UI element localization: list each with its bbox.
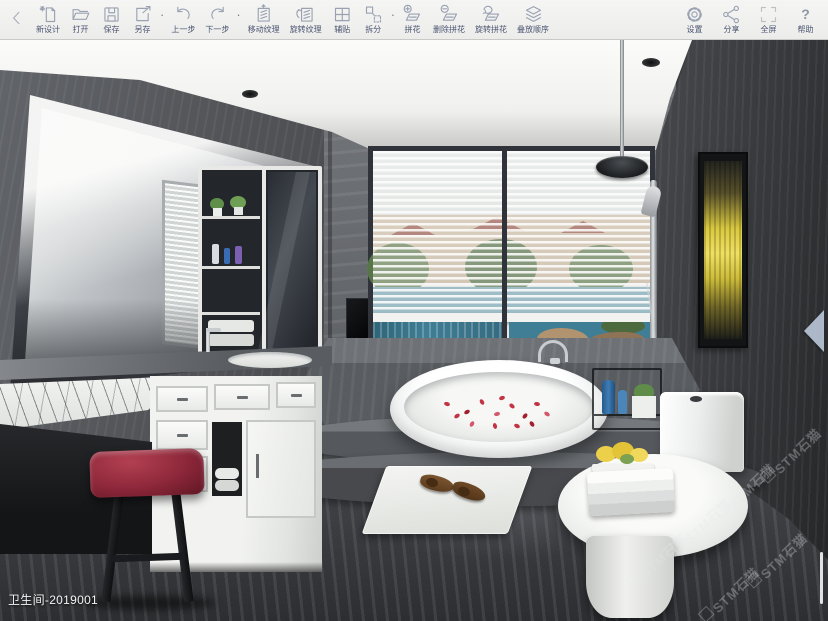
rose-petal [513,423,520,429]
rose-petal [463,409,470,415]
toiletry-bottle [212,244,219,264]
save-icon [101,3,122,25]
undo-icon [173,3,194,25]
toolbar-item-label: 全屏 [761,25,777,35]
cabinet-shelf [202,266,260,269]
fullscreen-icon [758,3,779,25]
rose-petal [494,411,501,416]
window-mullion [502,151,507,350]
metal-shelf-rack [592,368,662,430]
toolbar-item-split[interactable]: 拆分 [358,0,389,35]
toolbar-item-mosaic[interactable]: 拼花 [397,0,428,35]
toolbar-item-label: 下一步 [205,25,229,35]
toolbar-item-label: 拆分 [365,25,381,35]
open-icon [70,3,91,25]
back-button[interactable] [4,0,31,32]
toolbar-item-label: 新设计 [36,25,60,35]
gear-icon [684,3,705,25]
toolbar-item-settings[interactable]: 设置 [676,0,713,35]
design-canvas[interactable]: STM石猫 STM石猫 STM石猫 STM石猫 STM石猫 STM石猫 卫生间-… [0,40,828,621]
layers-icon [523,3,544,25]
toolbar-item-help[interactable]: ? 帮助 [787,0,824,35]
door-handle [256,454,259,478]
vanity-drawer [214,384,270,410]
toolbar-item-label: 旋转拼花 [475,25,507,35]
toolbar-item-label: 另存 [135,25,151,35]
rose-petal [498,395,505,401]
blue-bottle [602,380,615,414]
cabinet-shelf [202,216,260,219]
mosaic-add-icon [402,3,423,25]
panel-collapse-arrow[interactable] [804,310,824,352]
vanity-drawer [276,382,316,408]
cabinet-glass-door [268,172,316,360]
recessed-downlight [242,90,258,98]
toolbar-item-label: 上一步 [171,25,195,35]
toolbar-item-share[interactable]: 分享 [713,0,750,35]
toolbar-item-delete-mosaic[interactable]: 删除拼花 [428,0,470,35]
toolbar-item-label: 设置 [687,25,703,35]
rose-petal [508,403,515,410]
flower-greens [620,454,634,464]
project-name-label: 卫生间-2019001 [8,591,98,608]
cabinet-shelf [202,312,260,315]
rose-petal [469,420,475,427]
split-icon [363,3,384,25]
rain-shower-head [596,156,648,178]
help-icon: ? [795,3,816,25]
toolbar-item-label: 辅贴 [334,25,350,35]
wall-artwork [698,152,748,348]
towel-niche [212,422,242,496]
toolbar-item-label: 分享 [724,25,740,35]
mosaic-remove-icon [439,3,460,25]
vanity-drawer [156,386,208,412]
vanity-door [246,420,316,518]
toolbar-item-label: 帮助 [798,25,814,35]
toolbar-item-rotate-mosaic[interactable]: 旋转拼花 [470,0,512,35]
toiletry-bottle [235,246,242,264]
rose-petal [543,411,550,418]
folded-towel [587,468,675,516]
rotate-texture-icon [295,3,316,25]
cabinet-kick-shadow [150,562,322,572]
toolbar-item-label: 拼花 [405,25,421,35]
basin-faucet-spout [206,328,221,332]
rolled-towel [215,468,239,479]
move-texture-icon [253,3,274,25]
svg-text:?: ? [801,5,810,21]
toolbar-item-label: 旋转纹理 [290,25,322,35]
blue-bottle [618,390,627,414]
toolbar-separator: · [236,8,240,21]
red-stool-cushion [89,448,205,498]
toolbar-item-save-as[interactable]: 另存 [127,0,158,35]
toolbar-item-open[interactable]: 打开 [65,0,96,35]
mosaic-rotate-icon [481,3,502,25]
artwork-canvas [704,161,742,339]
toolbar-right-group: 设置 分享 全屏 ? 帮助 [676,0,824,35]
toolbar-separator: · [160,8,164,21]
toolbar-item-rotate-texture[interactable]: 旋转纹理 [285,0,327,35]
toolbar-item-label: 保存 [104,25,120,35]
rose-petal [453,413,460,420]
plant-pot [234,207,243,215]
toolbar-separator: · [391,8,395,21]
toolbar-item-move-texture[interactable]: 移动纹理 [243,0,285,35]
toolbar-item-fullscreen[interactable]: 全屏 [750,0,787,35]
shower-ceiling-pipe [620,40,624,162]
toolbar-item-new-design[interactable]: 新设计 [31,0,65,35]
toolbar-item-save[interactable]: 保存 [96,0,127,35]
chevron-left-icon [8,9,26,27]
share-icon [721,3,742,25]
toolbar-item-redo[interactable]: 下一步 [200,0,234,35]
wash-basin [228,352,312,368]
toolbar-item-assist-tile[interactable]: 辅贴 [327,0,358,35]
toolbar: 新设计 打开 保存 另存 · 上一步 下一步 · 移动纹理 旋转纹理 辅贴 拆分… [0,0,828,40]
tub-faucet-base [550,358,560,364]
blinds-bottom-rail [373,313,650,322]
rose-petal [534,402,541,407]
rose-petal [443,401,450,407]
vanity-drawer [156,420,208,450]
grid-tile-icon [332,3,353,25]
bathtub [390,360,608,458]
recessed-downlight [642,58,660,67]
save-as-icon [132,3,153,25]
new-design-icon [38,3,59,25]
window [368,146,655,355]
plant-pot [213,208,222,216]
rose-petal [529,420,536,427]
planter-box [632,396,656,418]
redo-icon [207,3,228,25]
rose-petal [522,412,529,419]
toiletry-bottle [224,248,230,264]
toolbar-item-label: 移动纹理 [248,25,280,35]
rose-petal [479,398,485,405]
toolbar-item-undo[interactable]: 上一步 [166,0,200,35]
bathtub-basin [404,372,594,442]
toolbar-item-label: 打开 [73,25,89,35]
toolbar-item-label: 叠放顺序 [517,25,549,35]
flush-button [690,396,702,402]
rolled-towel [215,480,239,491]
toolbar-item-label: 删除拼花 [433,25,465,35]
display-cabinet [198,166,322,366]
rose-petal [492,423,497,430]
bath-rug [362,466,533,534]
toolbar-item-stack-order[interactable]: 叠放顺序 [512,0,554,35]
folded-towel [208,334,254,346]
scroll-indicator[interactable] [820,552,823,604]
